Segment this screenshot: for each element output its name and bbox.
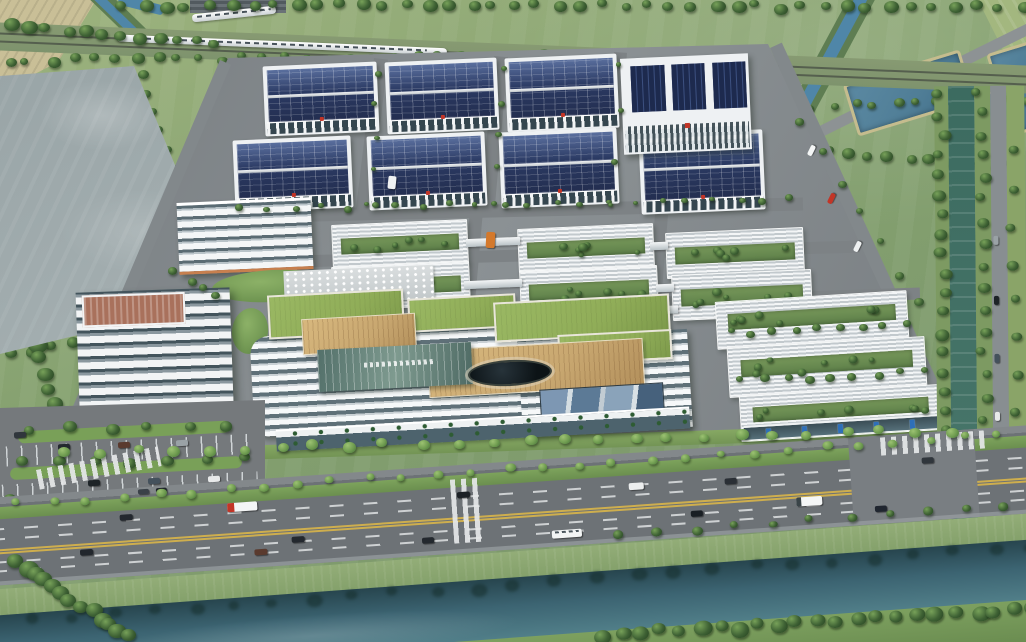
vehicle <box>994 354 999 363</box>
tree <box>133 33 147 44</box>
tree <box>980 306 991 315</box>
tree <box>831 103 840 110</box>
tree <box>749 0 759 7</box>
tree <box>220 421 233 431</box>
tree <box>684 2 696 12</box>
entrance-mark <box>701 195 705 199</box>
tree <box>907 155 918 164</box>
vehicle <box>88 480 100 487</box>
tree <box>37 368 54 382</box>
tree <box>501 66 507 71</box>
tree <box>774 4 787 15</box>
solar-office-block <box>620 53 752 154</box>
factory-hall <box>384 58 499 135</box>
tree <box>1007 260 1019 270</box>
tree <box>767 327 776 335</box>
tree <box>906 2 917 11</box>
tree <box>1011 332 1022 341</box>
vehicle <box>921 457 933 464</box>
vehicle <box>796 496 823 507</box>
tree <box>660 198 666 203</box>
tree <box>794 1 805 10</box>
tree <box>884 1 899 13</box>
tree <box>31 351 46 363</box>
tree <box>293 206 300 212</box>
vehicle <box>552 529 582 539</box>
tree <box>797 368 806 376</box>
entrance-mark <box>441 115 445 119</box>
tree <box>981 328 992 337</box>
tree <box>847 373 856 380</box>
tree <box>420 204 427 210</box>
tree <box>485 1 495 9</box>
tree <box>642 0 651 8</box>
tree <box>375 71 382 76</box>
truck-cab <box>227 503 234 512</box>
tree <box>573 1 587 13</box>
tree <box>746 331 754 338</box>
pv-roof <box>509 58 615 118</box>
factory-hall <box>498 127 619 208</box>
tree <box>325 476 334 483</box>
tree <box>997 502 1008 512</box>
tree <box>199 284 207 291</box>
tree <box>821 359 828 365</box>
tree <box>877 238 885 244</box>
tree <box>11 498 20 506</box>
entrance-mark <box>320 117 324 121</box>
tree <box>732 1 747 13</box>
tree <box>344 206 352 212</box>
tree <box>402 0 412 8</box>
tree <box>843 427 854 436</box>
tree <box>961 431 970 438</box>
tree <box>1010 408 1020 417</box>
tree <box>268 0 277 8</box>
tree <box>785 194 793 200</box>
tree <box>737 316 745 323</box>
tree <box>949 2 962 13</box>
tree <box>935 330 949 342</box>
tree <box>528 0 539 8</box>
tree <box>227 0 241 11</box>
tree <box>903 320 911 326</box>
tree <box>1018 2 1026 13</box>
rooftop-solar-array <box>631 65 666 112</box>
tree <box>736 429 749 439</box>
vehicle <box>138 489 149 495</box>
tree <box>167 446 180 457</box>
entrance-mark <box>561 113 565 117</box>
tree <box>578 242 588 251</box>
tree <box>186 490 196 499</box>
tree <box>343 442 356 453</box>
pv-roof <box>237 140 349 199</box>
tree <box>937 210 948 219</box>
tree <box>766 431 777 440</box>
tree <box>825 374 835 382</box>
crosswalk <box>450 478 484 544</box>
tree <box>235 204 243 210</box>
tree <box>121 629 136 641</box>
tree <box>926 3 936 11</box>
tree <box>660 433 671 442</box>
vehicle <box>176 440 188 447</box>
tree <box>240 446 251 455</box>
facade-sign <box>364 359 435 368</box>
tree <box>712 287 722 296</box>
tree <box>936 368 948 378</box>
tree <box>48 57 61 68</box>
rooftop-solar-array <box>671 63 706 110</box>
tree <box>940 406 951 415</box>
vehicle <box>254 549 267 556</box>
tree <box>751 559 763 569</box>
truck-cab <box>796 497 802 506</box>
tree <box>364 202 369 206</box>
tree <box>841 0 855 11</box>
tree <box>292 0 307 11</box>
tree <box>374 136 380 141</box>
sky-bridge <box>650 242 668 251</box>
tree <box>154 52 165 61</box>
tree <box>1011 294 1021 302</box>
vehicle <box>995 412 1000 421</box>
tree <box>106 424 119 435</box>
vehicle <box>118 442 130 449</box>
tree <box>936 346 948 356</box>
tree <box>318 203 323 207</box>
tree <box>66 614 77 623</box>
tree <box>896 368 904 375</box>
factory-hall <box>504 54 619 133</box>
tree <box>699 434 709 442</box>
tree <box>405 236 413 243</box>
tree <box>38 23 50 33</box>
tree <box>1013 371 1024 380</box>
tree <box>41 384 55 395</box>
tree <box>140 0 154 11</box>
tree <box>578 252 585 258</box>
tree <box>442 0 456 11</box>
tree <box>937 306 949 316</box>
tree <box>554 1 567 12</box>
tree <box>622 3 632 11</box>
aerial-rendering <box>0 0 1026 642</box>
tree <box>58 447 70 456</box>
tree <box>495 132 502 137</box>
tree <box>634 249 640 255</box>
tree <box>631 434 643 444</box>
pv-roof <box>267 66 375 123</box>
glass-atrium <box>317 342 473 392</box>
tree <box>838 181 847 188</box>
tree <box>597 0 607 7</box>
bus-windows <box>555 530 579 534</box>
tree <box>804 514 813 521</box>
entrance-mark <box>685 123 690 128</box>
vehicle <box>80 549 93 556</box>
tree <box>333 0 345 8</box>
tree <box>980 239 993 249</box>
vehicle <box>422 537 434 544</box>
vehicle <box>724 478 736 485</box>
tree <box>880 151 894 162</box>
vehicle <box>387 176 396 190</box>
tree <box>785 374 793 381</box>
vehicle <box>14 432 26 439</box>
tree <box>79 25 93 37</box>
tree <box>970 0 983 10</box>
tree <box>95 29 108 40</box>
tree <box>20 58 29 65</box>
tree <box>931 89 942 98</box>
tree <box>345 590 357 600</box>
tree <box>491 201 497 206</box>
tree <box>1009 146 1018 154</box>
tree <box>979 263 989 271</box>
entrance-mark <box>558 189 562 193</box>
tree <box>895 272 904 280</box>
tree <box>782 245 789 251</box>
vehicle <box>291 536 304 543</box>
tree <box>992 4 1002 12</box>
tree <box>752 370 760 377</box>
tree <box>939 387 950 396</box>
tree <box>927 437 935 444</box>
tree <box>376 438 386 446</box>
tree <box>138 70 149 79</box>
shop-banner <box>838 424 844 433</box>
tree <box>662 2 673 11</box>
tree <box>729 521 738 529</box>
sky-bridge <box>656 284 674 293</box>
vehicle <box>486 232 496 248</box>
tree <box>575 291 582 297</box>
tree <box>489 439 500 448</box>
tree <box>886 510 895 517</box>
tree <box>736 376 743 382</box>
tree <box>934 247 947 257</box>
tree <box>306 439 319 449</box>
tree <box>204 0 216 10</box>
tree <box>4 18 20 31</box>
entrance-mark <box>292 193 296 197</box>
tree <box>793 327 801 333</box>
tree <box>21 21 37 34</box>
tower-roof-terrace <box>82 292 186 328</box>
vehicle <box>457 491 470 498</box>
tree <box>754 311 764 319</box>
tree <box>160 2 175 14</box>
factory-hall <box>263 62 380 137</box>
tree <box>559 243 568 251</box>
tree <box>366 473 375 480</box>
tree <box>616 62 621 66</box>
tree <box>921 367 928 373</box>
shop-banner <box>910 420 916 429</box>
vehicle <box>875 505 887 512</box>
tree <box>310 0 323 10</box>
tree <box>446 200 453 206</box>
tree <box>801 431 811 439</box>
tree <box>593 435 603 444</box>
tree <box>873 425 884 434</box>
vehicle <box>148 478 160 485</box>
tree <box>594 629 612 642</box>
tree <box>211 292 220 299</box>
tree <box>177 3 189 13</box>
vehicle <box>994 296 999 305</box>
tree <box>977 218 989 228</box>
tree <box>168 267 177 274</box>
tree <box>821 2 831 10</box>
tree <box>921 407 929 414</box>
vehicle <box>119 514 132 521</box>
tree <box>858 3 871 13</box>
tree <box>978 416 988 424</box>
tree <box>856 208 863 214</box>
tree <box>391 202 398 208</box>
tree <box>576 202 583 207</box>
tree <box>914 298 924 306</box>
tree <box>878 322 886 328</box>
tree <box>371 167 376 171</box>
tree <box>875 372 884 379</box>
pv-roof <box>389 62 495 120</box>
vehicle <box>993 236 998 245</box>
tree <box>376 1 387 10</box>
tree <box>758 198 766 204</box>
tree <box>739 198 745 203</box>
tree <box>89 53 99 61</box>
tree <box>509 1 520 10</box>
tree <box>94 449 106 459</box>
tree <box>525 435 538 445</box>
tree <box>842 148 855 159</box>
tree <box>975 347 985 355</box>
tree <box>454 440 465 449</box>
tree <box>867 102 876 109</box>
pv-roof <box>503 132 615 195</box>
tree <box>932 190 945 201</box>
tree <box>971 88 980 96</box>
tree <box>423 0 437 12</box>
tree <box>204 446 217 456</box>
tree <box>932 112 943 121</box>
tree <box>70 53 81 62</box>
tree <box>357 0 372 10</box>
factory-hall <box>366 131 487 210</box>
entrance-mark <box>426 191 430 195</box>
vehicle <box>629 482 644 490</box>
vehicle <box>691 510 703 517</box>
tree <box>812 324 820 331</box>
tree <box>109 54 120 63</box>
tree <box>906 549 919 560</box>
tree <box>795 118 804 125</box>
tree <box>711 1 725 13</box>
tree <box>132 53 145 63</box>
rooftop-solar-array <box>712 61 747 108</box>
tree <box>862 152 872 160</box>
tree <box>1005 223 1015 232</box>
tree <box>606 458 616 466</box>
tree <box>894 98 905 107</box>
tree <box>763 408 770 414</box>
tree <box>469 1 481 10</box>
